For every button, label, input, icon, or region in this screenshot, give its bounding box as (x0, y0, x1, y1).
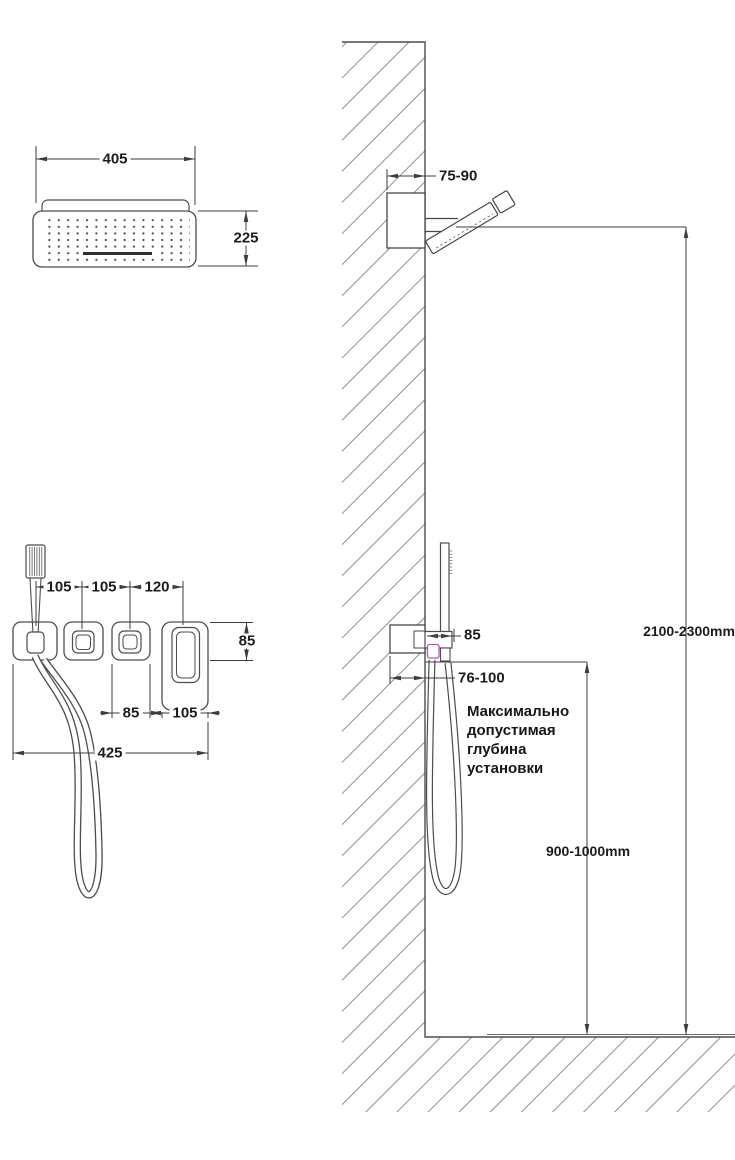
max-install-depth-note: Максимально допустимая глубина установки (467, 702, 579, 778)
dim-spacing-2-label: 105 (88, 580, 119, 595)
overhead-shower-front (33, 200, 196, 267)
dim-total-width-label: 425 (94, 746, 125, 761)
installation-drawing: 405 225 105 105 120 85 85 105 425 75-90 … (0, 0, 735, 1160)
hand-shower-side (425, 543, 459, 892)
hand-shower-spray-face (28, 547, 43, 576)
dim-spacing-1-label: 105 (43, 580, 74, 595)
dim-valve-height-label: 900-1000mm (546, 844, 630, 858)
dim-head-width-label: 405 (99, 152, 130, 167)
dim-holder-size-label: 85 (464, 628, 481, 643)
dim-plate4-width-label: 105 (169, 706, 200, 721)
dim-plate3-width-label: 85 (120, 706, 143, 721)
head-embed-box (387, 193, 425, 248)
dim-valve-embed-depth-label: 76-100 (458, 671, 505, 686)
water-outlet-magenta (428, 645, 440, 659)
dim-head-height-label: 2100-2300mm (643, 624, 735, 638)
overhead-shower-side (425, 190, 516, 254)
dim-head-embed-depth-label: 75-90 (439, 169, 477, 184)
hand-shower-holder (27, 632, 44, 653)
dim-head-depth-label: 225 (230, 231, 261, 246)
valve-embed-box (390, 625, 425, 653)
dim-plate-height-label: 85 (236, 634, 259, 649)
hand-shower-front (26, 545, 99, 895)
dim-spacing-3-label: 120 (141, 580, 172, 595)
hose-connector (441, 648, 451, 661)
